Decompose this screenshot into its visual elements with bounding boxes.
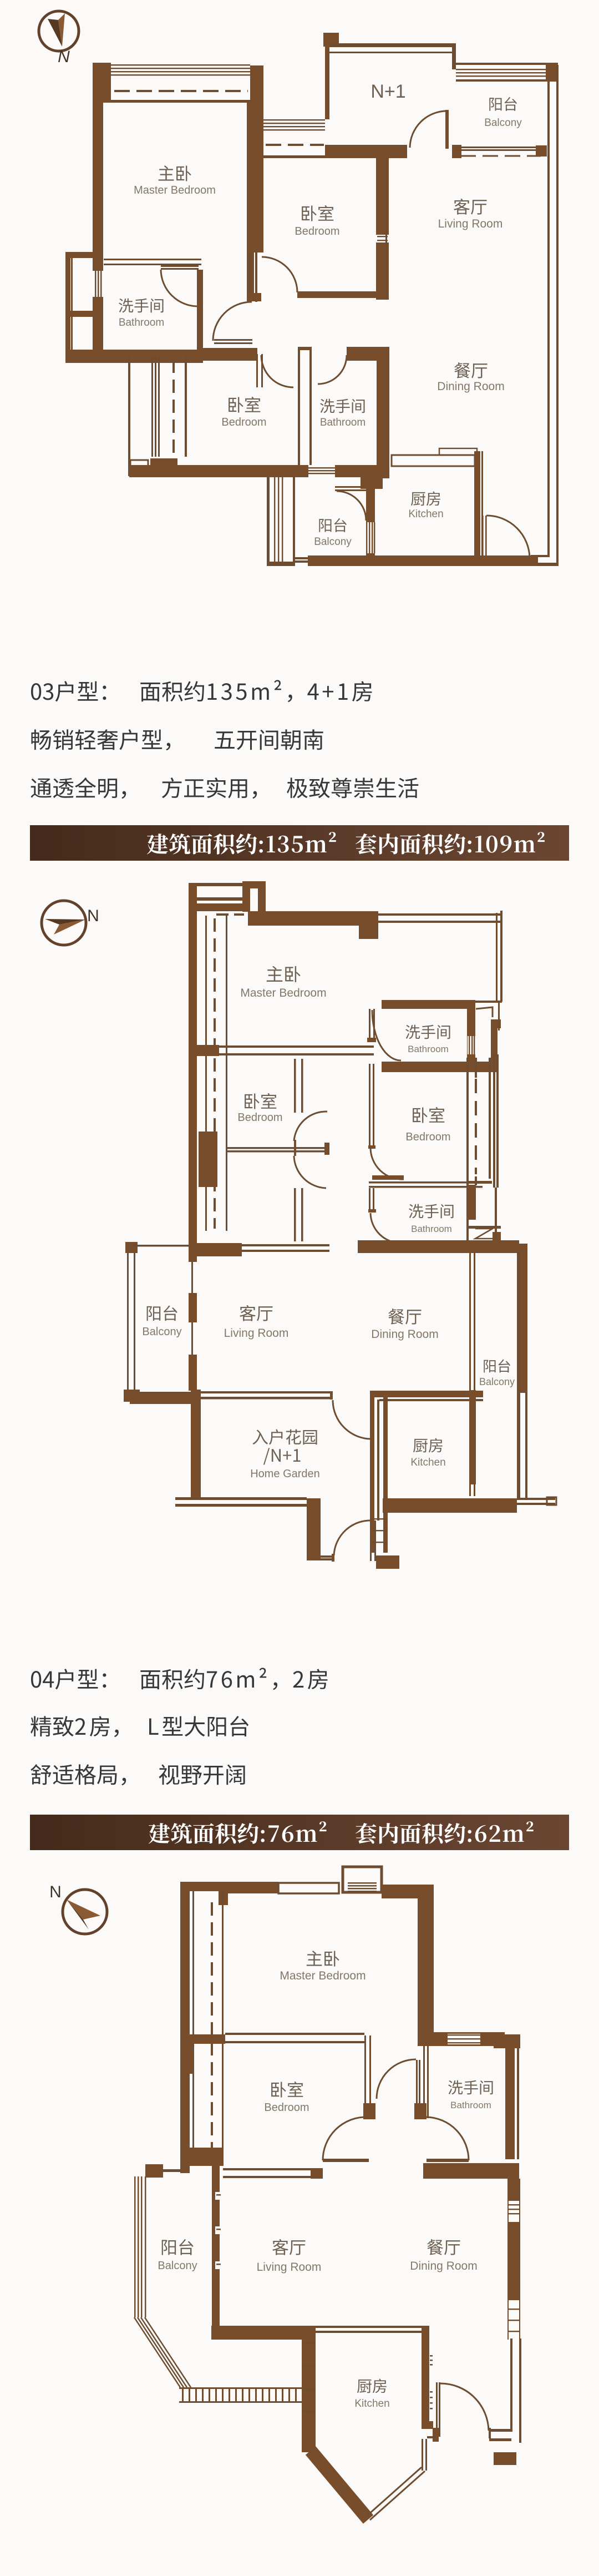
svg-text:Living Room: Living Room xyxy=(438,218,503,230)
svg-text:Bathroom: Bathroom xyxy=(119,317,164,329)
svg-text:Dining Room: Dining Room xyxy=(437,380,504,393)
svg-text:Bathroom: Bathroom xyxy=(411,1224,452,1234)
svg-text:Kitchen: Kitchen xyxy=(410,1457,445,1468)
svg-text:Master Bedroom: Master Bedroom xyxy=(280,1969,366,1982)
svg-text:Bathroom: Bathroom xyxy=(450,2100,491,2110)
svg-text:N: N xyxy=(58,48,70,66)
svg-text:Master Bedroom: Master Bedroom xyxy=(240,987,326,999)
svg-text:Dining Room: Dining Room xyxy=(371,1328,438,1341)
svg-text:Bedroom: Bedroom xyxy=(295,225,339,238)
svg-text:N+1: N+1 xyxy=(370,81,405,102)
svg-text:Bedroom: Bedroom xyxy=(221,416,266,428)
svg-text:Balcony: Balcony xyxy=(484,117,522,129)
svg-text:Living Room: Living Room xyxy=(257,2261,322,2274)
svg-text:Bathroom: Bathroom xyxy=(408,1044,449,1054)
svg-text:Balcony: Balcony xyxy=(314,536,352,548)
svg-text:N: N xyxy=(49,1883,62,1901)
svg-text:Bedroom: Bedroom xyxy=(405,1131,450,1143)
svg-text:Balcony: Balcony xyxy=(142,1326,181,1338)
svg-text:Dining Room: Dining Room xyxy=(410,2260,477,2272)
svg-text:Balcony: Balcony xyxy=(479,1376,515,1387)
svg-text:Bedroom: Bedroom xyxy=(264,2102,309,2114)
svg-text:Living Room: Living Room xyxy=(224,1327,289,1340)
svg-text:Bedroom: Bedroom xyxy=(237,1112,282,1124)
svg-text:Balcony: Balcony xyxy=(158,2260,197,2272)
svg-text:Master Bedroom: Master Bedroom xyxy=(134,184,216,196)
svg-text:Kitchen: Kitchen xyxy=(354,2398,389,2410)
svg-text:N: N xyxy=(87,907,99,925)
svg-text:Bathroom: Bathroom xyxy=(320,417,366,428)
svg-text:Home Garden: Home Garden xyxy=(250,1468,320,1480)
svg-text:Kitchen: Kitchen xyxy=(408,508,443,520)
